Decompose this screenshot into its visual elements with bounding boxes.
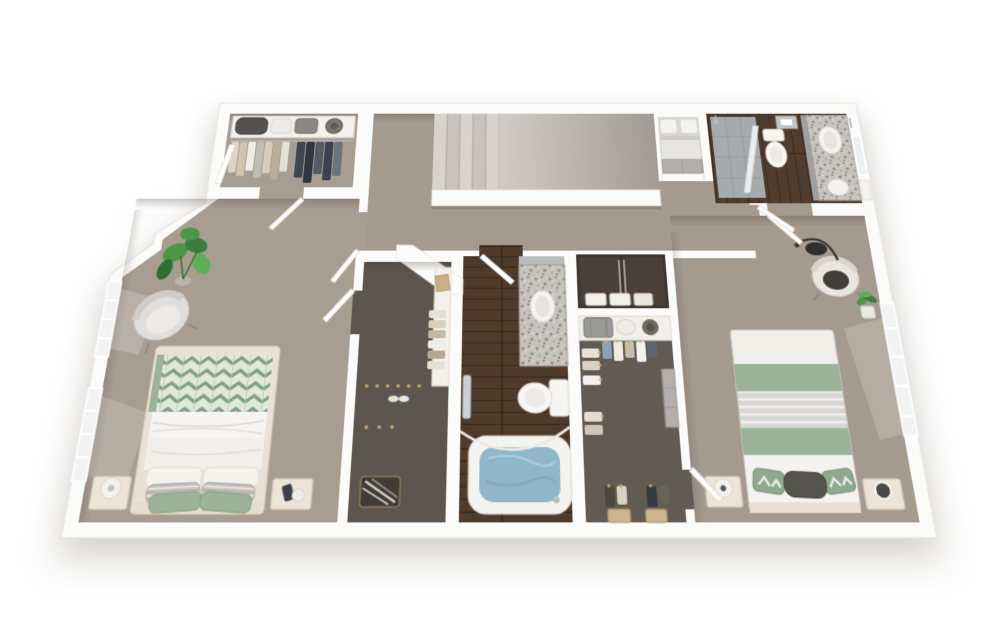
suitcase	[584, 318, 614, 337]
linen-closet	[578, 256, 667, 306]
sage-band	[734, 364, 842, 391]
towel-stack	[634, 294, 653, 306]
pillow-sage	[148, 491, 201, 514]
pillow-patterned	[753, 468, 784, 495]
bath-water	[479, 447, 561, 502]
tan-basket	[608, 509, 631, 522]
towel-bar	[463, 375, 471, 418]
duffel-bag	[235, 118, 269, 134]
bathroom-2-doorway	[767, 203, 813, 216]
washer-lid	[660, 119, 678, 133]
basket-with-blanket	[359, 477, 400, 507]
bed-1	[130, 346, 280, 514]
nightstand-right	[863, 479, 906, 509]
mirror-panel	[519, 256, 565, 264]
chevron-blanket	[152, 355, 273, 412]
hat-box	[616, 320, 635, 335]
page-background	[0, 0, 998, 626]
stair-railing	[431, 190, 661, 206]
dryer-lid	[680, 119, 698, 133]
closet-1-doorway	[259, 187, 304, 198]
towel-stack	[586, 294, 607, 306]
gray-striped-band	[737, 391, 848, 428]
nightstand-right	[270, 479, 312, 509]
tan-box	[435, 274, 450, 291]
sage-band	[741, 428, 852, 455]
floor-plan-scene	[24, 91, 975, 556]
bathroom-1-doorway	[479, 245, 522, 256]
pillow-sage	[199, 491, 253, 514]
stair-slope	[499, 114, 660, 190]
toilet	[518, 380, 569, 416]
staircase	[431, 114, 661, 210]
nightstand-left	[88, 477, 131, 510]
white-bag	[270, 119, 292, 134]
towel-stack	[610, 294, 631, 306]
headboard	[749, 502, 861, 513]
tan-basket	[645, 509, 667, 522]
pillow-dark	[783, 471, 827, 499]
gray-bag	[294, 119, 318, 134]
floor-plan-rendering	[24, 91, 975, 556]
